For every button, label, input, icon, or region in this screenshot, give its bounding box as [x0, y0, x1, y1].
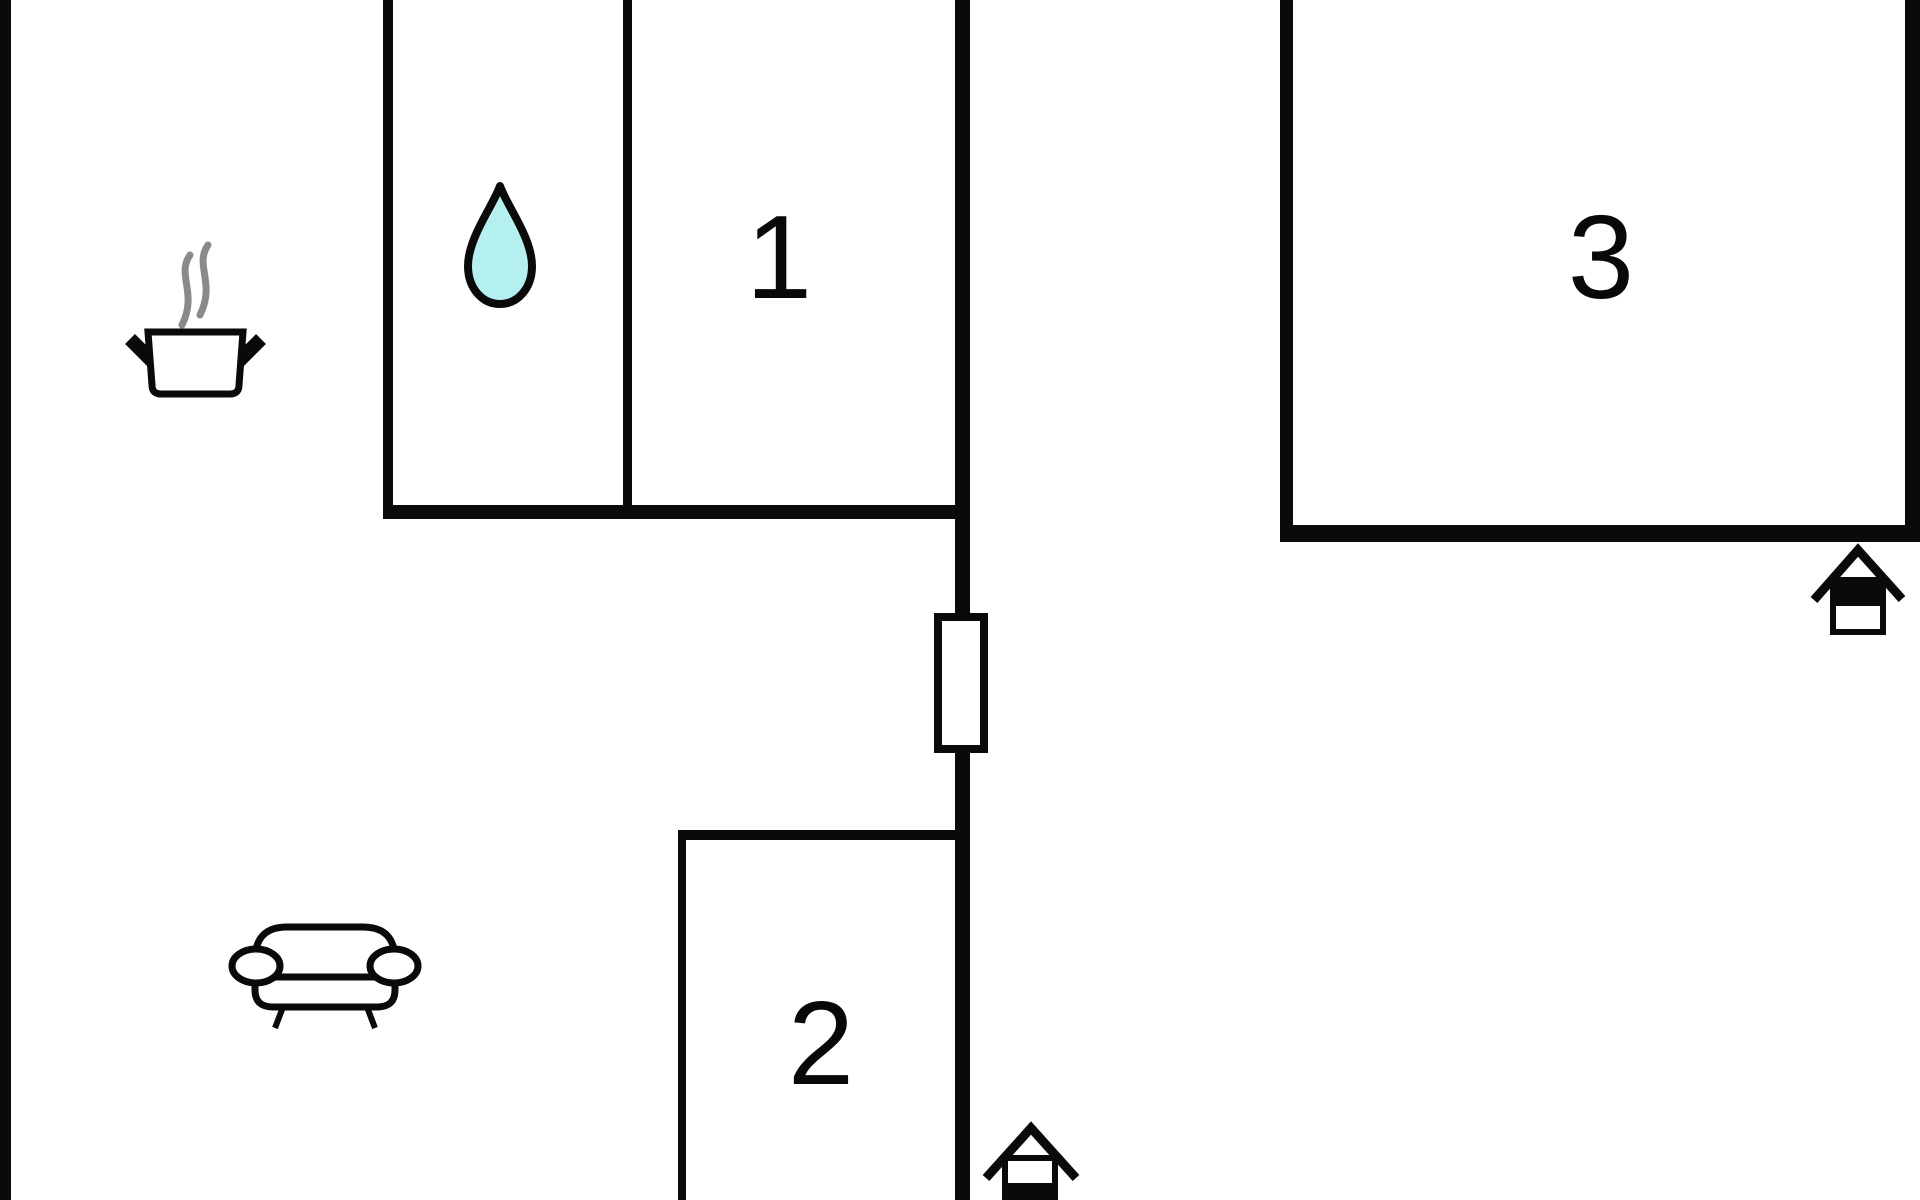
wall-bath-left [383, 0, 393, 519]
house-body-filled-half [1005, 1183, 1055, 1200]
room-3-label: 3 [1500, 198, 1700, 318]
steaming-pot-icon [118, 233, 273, 405]
floor-plan: 1 2 3 [0, 0, 1920, 1200]
steam-wisp-left [182, 255, 190, 325]
house-body-filled-half [1833, 580, 1883, 606]
wall-room3-left [1280, 0, 1293, 542]
window-symbol [934, 613, 988, 753]
wall-bath-divider [623, 0, 632, 512]
house-entrance-icon-bottom [978, 1120, 1082, 1200]
pot-body [148, 332, 243, 394]
house-entrance-icon-top [1806, 542, 1910, 637]
room-2-label: 2 [720, 984, 920, 1104]
wall-left-edge [0, 0, 11, 1200]
sofa-icon [225, 920, 425, 1035]
wall-main-vertical [955, 0, 970, 1200]
wall-room3-right [1905, 0, 1920, 542]
sofa-armrest-right [370, 949, 418, 983]
wall-bath-bottom [383, 505, 970, 519]
wall-room2-top [678, 830, 962, 840]
wall-room3-bottom [1280, 525, 1920, 542]
room-1-label: 1 [678, 198, 878, 318]
steam-wisp-right [200, 245, 208, 315]
wall-room2-left [678, 830, 686, 1200]
water-drop-icon [460, 180, 540, 312]
sofa-armrest-left [232, 949, 280, 983]
